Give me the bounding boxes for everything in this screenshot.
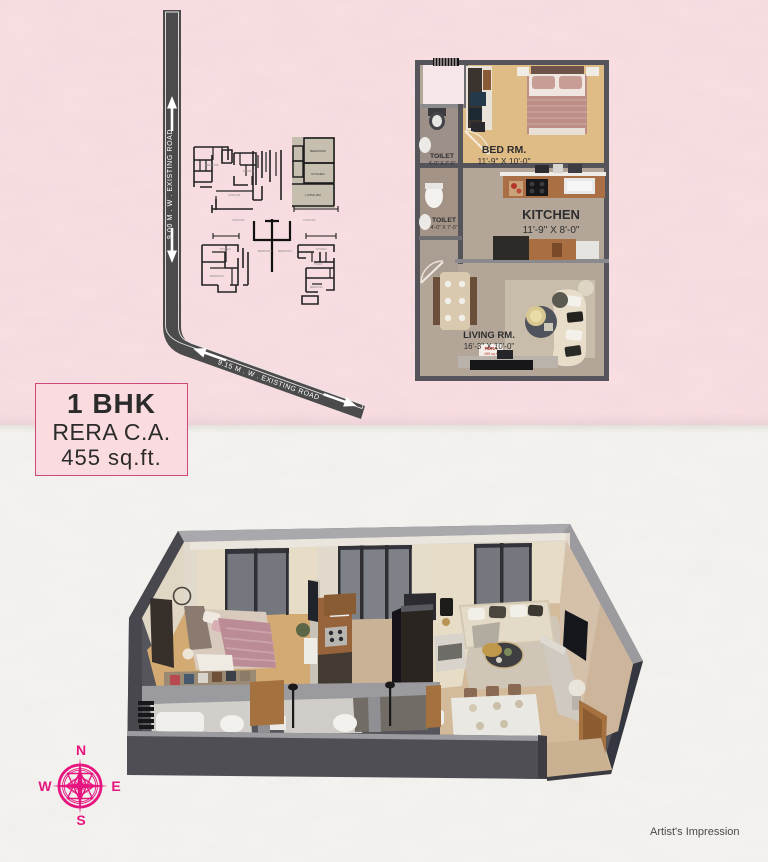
svg-text:BEDROOM: BEDROOM <box>206 164 218 167</box>
svg-text:4'-0" X 7'-0": 4'-0" X 7'-0" <box>428 161 455 167</box>
svg-text:9.15 M . W . EXISTING ROAD: 9.15 M . W . EXISTING ROAD <box>217 359 321 401</box>
svg-text:11'-9" X 10'-0": 11'-9" X 10'-0" <box>477 156 530 166</box>
svg-text:KITCHEN: KITCHEN <box>311 172 324 176</box>
svg-text:S: S <box>76 812 85 828</box>
svg-text:LIVING RM: LIVING RM <box>232 219 244 222</box>
svg-text:11'-9" X 8'-0": 11'-9" X 8'-0" <box>523 225 580 236</box>
svg-text:BEDROOM 1: BEDROOM 1 <box>258 250 273 253</box>
svg-text:4'-0" X 7'-0": 4'-0" X 7'-0" <box>430 225 457 231</box>
svg-text:16'-3" X 10'-0": 16'-3" X 10'-0" <box>464 342 515 351</box>
svg-text:BEDROOM: BEDROOM <box>310 149 326 153</box>
svg-text:W: W <box>38 778 52 794</box>
svg-text:BEDROOM: BEDROOM <box>310 286 322 289</box>
svg-text:LIVING RM: LIVING RM <box>305 193 321 197</box>
svg-text:KITCHEN: KITCHEN <box>522 207 580 222</box>
svg-text:TOILET: TOILET <box>314 263 323 266</box>
svg-text:E: E <box>111 778 120 794</box>
svg-text:BEDROOM 1: BEDROOM 1 <box>210 275 225 278</box>
svg-text:LIVING RM: LIVING RM <box>228 194 240 197</box>
svg-text:LIVING RM.: LIVING RM. <box>463 330 515 341</box>
svg-text:LIVING RM: LIVING RM <box>303 219 315 222</box>
svg-text:TOILET: TOILET <box>432 217 457 224</box>
svg-text:455 sq.ft: 455 sq.ft <box>484 352 497 356</box>
svg-text:KITCHEN: KITCHEN <box>220 248 231 251</box>
svg-text:N: N <box>76 742 86 758</box>
svg-text:BED RM.: BED RM. <box>482 144 526 156</box>
svg-text:KITCHEN: KITCHEN <box>243 170 254 173</box>
svg-text:TOILET: TOILET <box>430 153 455 160</box>
svg-text:BEDROOM 1: BEDROOM 1 <box>278 250 293 253</box>
svg-text:9.00 M . W . EXISTING ROAD: 9.00 M . W . EXISTING ROAD <box>167 129 174 239</box>
svg-text:KITCHEN: KITCHEN <box>316 248 327 251</box>
